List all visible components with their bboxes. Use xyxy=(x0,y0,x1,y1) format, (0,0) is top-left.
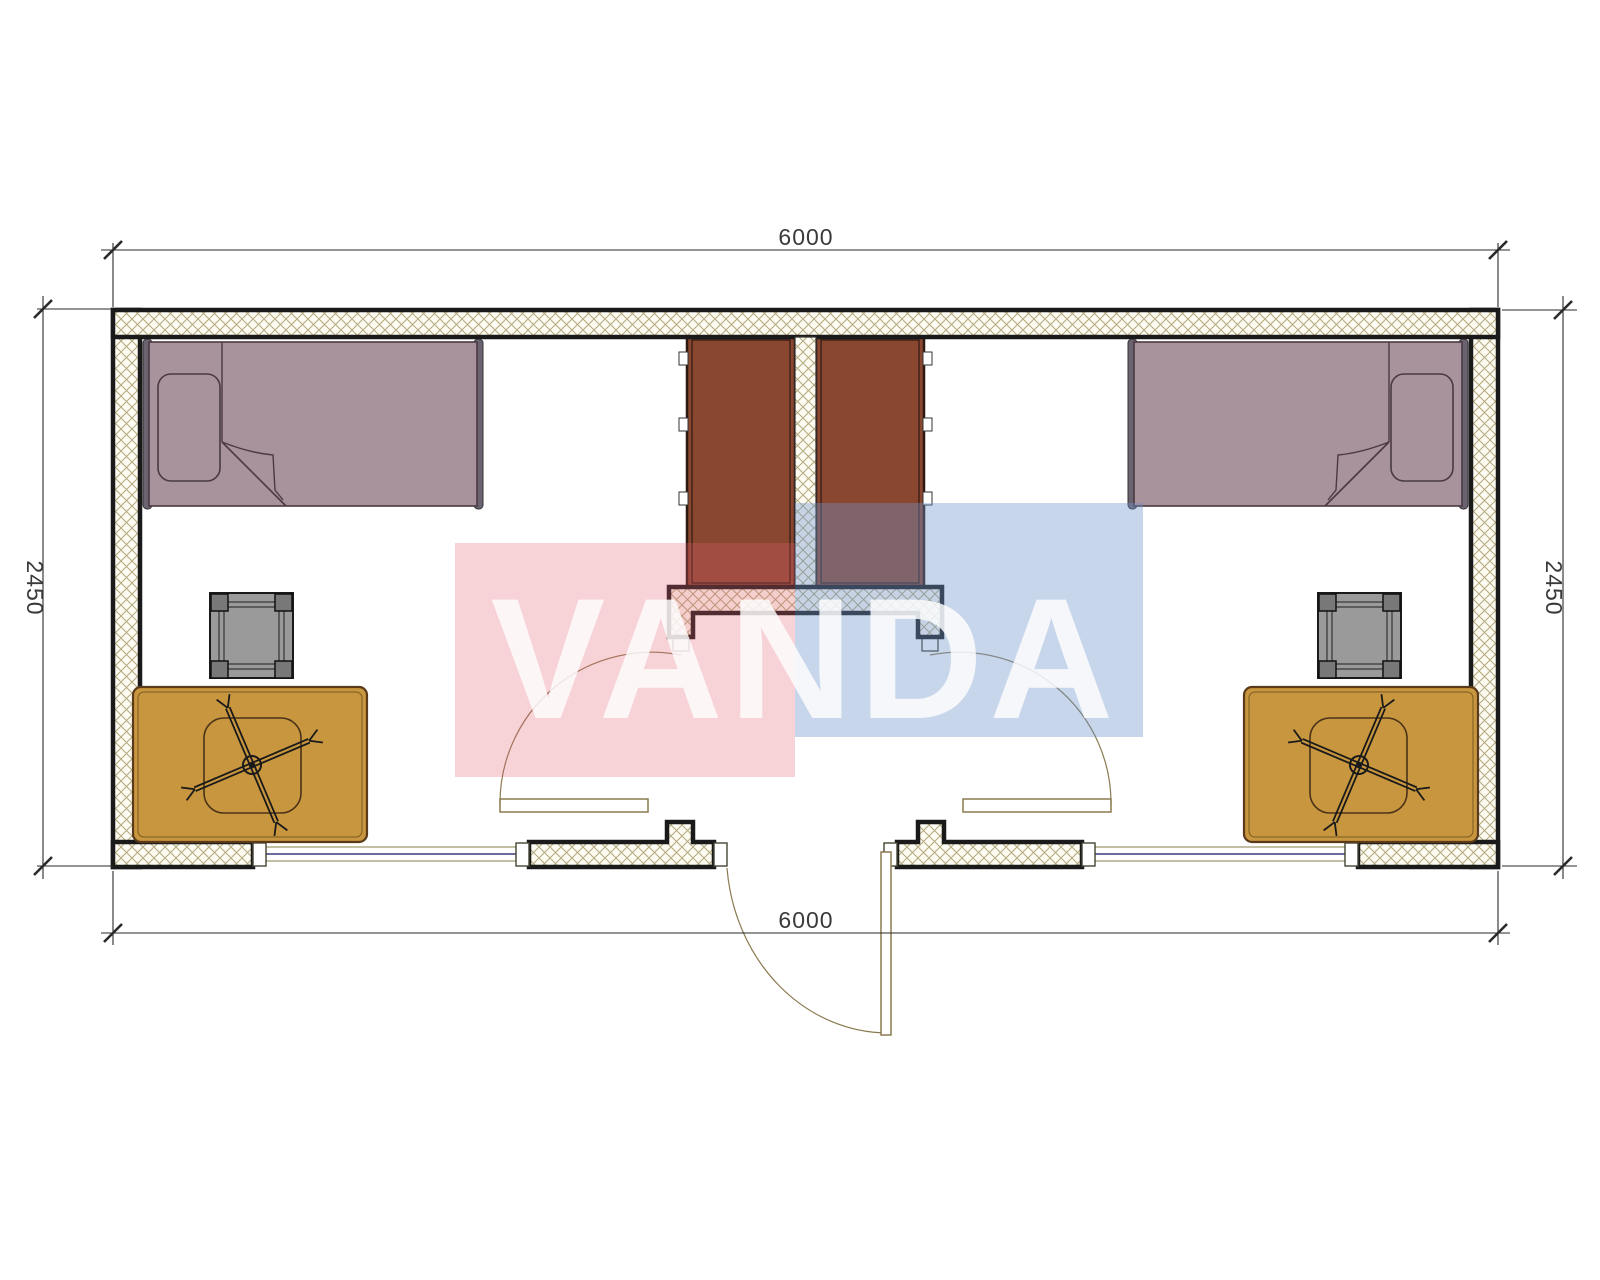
bottom-wall-corner-segment xyxy=(113,842,253,867)
interior-door-leaf xyxy=(963,799,1111,812)
dimension-left: 2450 xyxy=(22,296,113,879)
window-frame xyxy=(1345,843,1358,866)
floor-plan-canvas: VANDA 6000 6000 2450 xyxy=(0,0,1600,1280)
watermark: VANDA xyxy=(455,503,1143,777)
stool-leg xyxy=(275,594,292,611)
square-stool xyxy=(210,593,293,678)
single-bed xyxy=(1128,339,1468,509)
dimension-bottom-value: 6000 xyxy=(778,907,833,933)
entrance-door-swing-arc xyxy=(727,868,888,1033)
wardrobe-hinge xyxy=(679,352,688,365)
entrance-jamb-frame xyxy=(714,843,727,866)
wardrobe-hinge xyxy=(923,352,932,365)
dimension-top-value: 6000 xyxy=(778,224,833,250)
dimension-right-value: 2450 xyxy=(1541,560,1567,615)
top-wall xyxy=(113,310,1498,337)
bottom-wall-corner-segment xyxy=(1358,842,1498,867)
bed-pillow xyxy=(158,374,220,481)
entrance-door xyxy=(727,852,891,1035)
wardrobe-hinge xyxy=(923,418,932,431)
stool-leg xyxy=(211,661,228,678)
square-stool xyxy=(1318,593,1401,678)
stool-leg xyxy=(1383,594,1400,611)
stool-leg xyxy=(1319,594,1336,611)
single-bed xyxy=(143,339,483,509)
stool-leg xyxy=(1319,661,1336,678)
wardrobe-hinge xyxy=(679,492,688,505)
window-right xyxy=(1082,843,1358,866)
floor-plan-drawing: VANDA 6000 6000 2450 xyxy=(0,0,1600,1280)
dimension-left-value: 2450 xyxy=(22,560,48,615)
dimension-bottom: 6000 xyxy=(101,871,1510,945)
entrance-door-leaf xyxy=(881,852,891,1035)
watermark-text: VANDA xyxy=(491,563,1120,755)
dimension-top: 6000 xyxy=(101,224,1510,307)
dimension-right: 2450 xyxy=(1502,296,1577,879)
interior-door-leaf xyxy=(500,799,648,812)
bed-pillow xyxy=(1391,374,1453,481)
window-frame xyxy=(1082,843,1095,866)
window-left xyxy=(253,843,529,866)
bottom-wall-door-segment xyxy=(529,822,714,867)
stool-leg xyxy=(1383,661,1400,678)
stool-leg xyxy=(211,594,228,611)
window-frame xyxy=(253,843,266,866)
window-frame xyxy=(516,843,529,866)
wardrobe-hinge xyxy=(679,418,688,431)
stool-leg xyxy=(275,661,292,678)
bottom-wall-door-segment xyxy=(897,822,1082,867)
